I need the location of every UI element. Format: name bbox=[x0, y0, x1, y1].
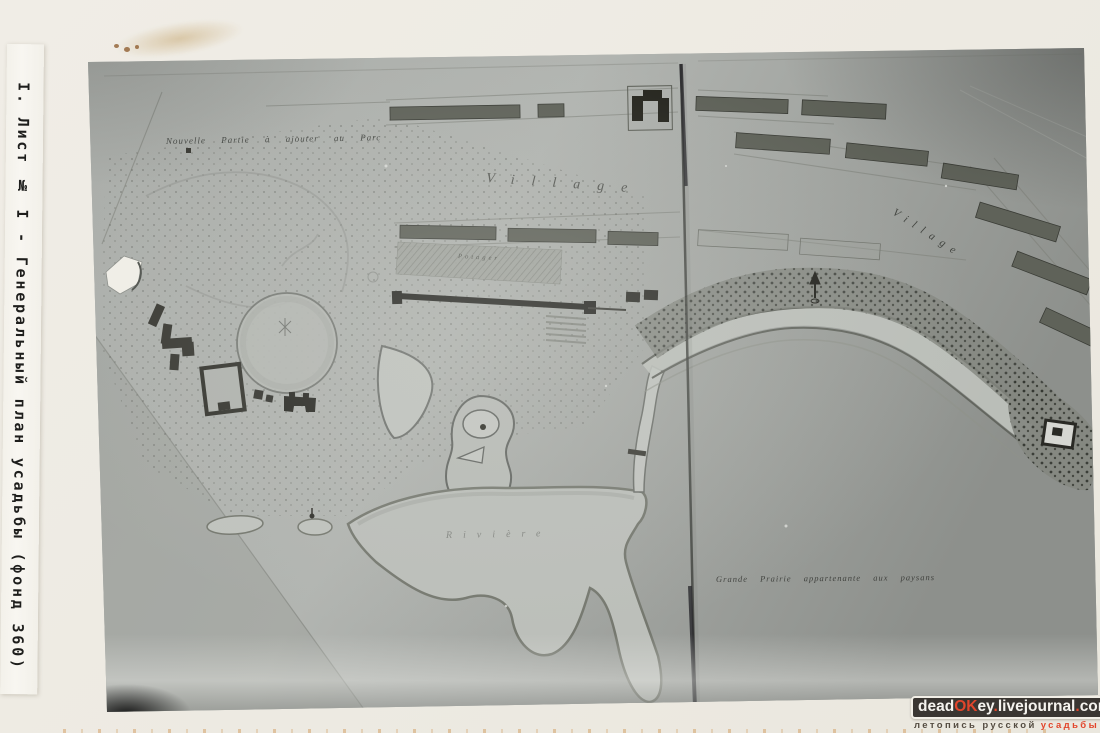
watermark: deadOKey.livejournal.com летопись русско… bbox=[911, 696, 1097, 731]
side-label-text: I. Лист № I - Генеральный план усадьбы (… bbox=[8, 44, 33, 671]
map-photograph: Nouvelle Partie à ajouter au Parc Villag… bbox=[86, 46, 1100, 714]
watermark-tagline-segment: летопись русской bbox=[914, 720, 1037, 731]
page-bottom-specks bbox=[48, 729, 1060, 733]
map-label-riviere: Rivière bbox=[445, 528, 552, 541]
west-pond-small bbox=[298, 519, 332, 535]
watermark-segment: ey bbox=[977, 698, 993, 715]
stain-speck bbox=[124, 47, 130, 52]
estate-plan-map: Nouvelle Partie à ajouter au Parc Villag… bbox=[86, 46, 1100, 714]
side-label-strip: I. Лист № I - Генеральный план усадьбы (… bbox=[0, 44, 44, 694]
watermark-segment: dead bbox=[918, 698, 954, 715]
watermark-badge: deadOKey.livejournal.com bbox=[911, 696, 1100, 719]
watermark-segment: livejournal bbox=[998, 698, 1076, 715]
watermark-tagline-segment: усадьбы bbox=[1041, 720, 1099, 731]
stain-speck bbox=[135, 45, 139, 49]
album-page: I. Лист № I - Генеральный план усадьбы (… bbox=[0, 0, 1100, 733]
watermark-segment: com bbox=[1080, 698, 1100, 715]
small-structure bbox=[186, 148, 191, 153]
round-lawn bbox=[237, 293, 337, 393]
pond-island bbox=[463, 410, 499, 438]
riverside-estate-building bbox=[1042, 420, 1075, 448]
watermark-tagline: летопись русскойусадьбы bbox=[911, 720, 1097, 731]
stain-speck bbox=[114, 44, 119, 48]
map-label-grande-prairie: Grande Prairie appartenante aux paysans bbox=[716, 572, 935, 584]
watermark-segment: OK bbox=[954, 698, 977, 715]
courtyard-building bbox=[201, 364, 244, 414]
